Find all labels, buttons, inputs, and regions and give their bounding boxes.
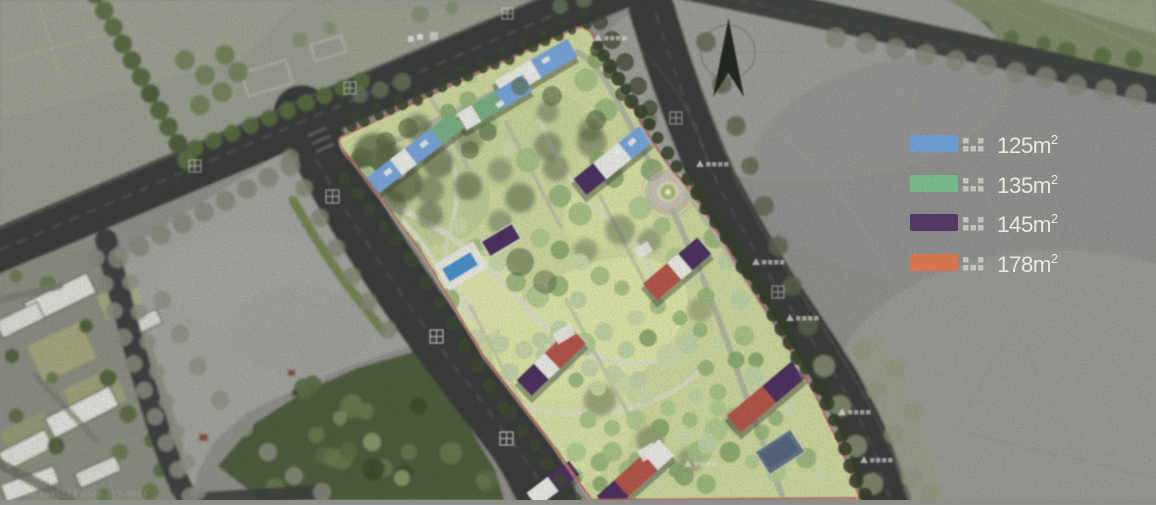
- svg-text:135m2: 135m2: [997, 172, 1058, 198]
- svg-text:178m2: 178m2: [997, 251, 1058, 277]
- svg-text:145m2: 145m2: [997, 211, 1058, 237]
- svg-text:125m2: 125m2: [997, 132, 1058, 158]
- svg-text:0738-6885123 4008-123-4567: 0738-6885123 4008-123-4567: [14, 490, 148, 499]
